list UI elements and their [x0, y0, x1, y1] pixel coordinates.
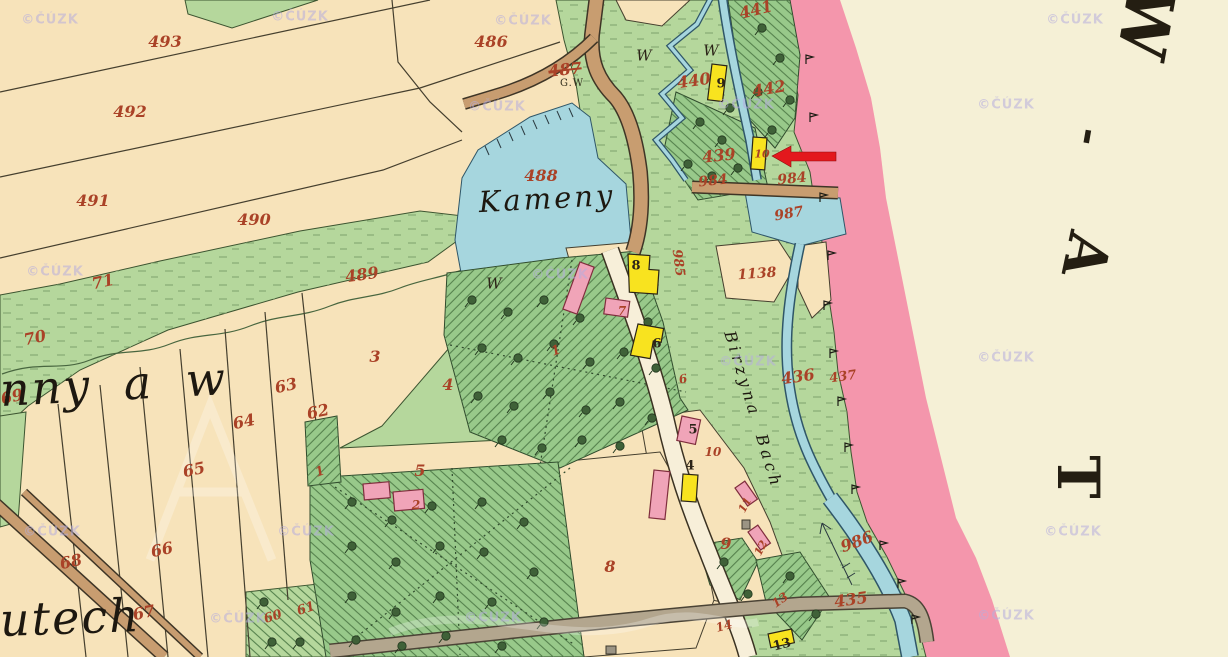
map-viewport[interactable]: 4934924914904897170694864874884404414424…	[0, 0, 1228, 657]
building-stone-2b	[393, 489, 425, 511]
building-stone-2a	[363, 482, 390, 500]
road-984	[692, 187, 838, 193]
building-stone-7	[604, 298, 630, 317]
building-wood-10	[751, 137, 767, 170]
map-canvas	[0, 0, 1228, 657]
shed	[742, 520, 750, 529]
building-wood-4	[681, 474, 698, 502]
shed	[606, 646, 616, 654]
